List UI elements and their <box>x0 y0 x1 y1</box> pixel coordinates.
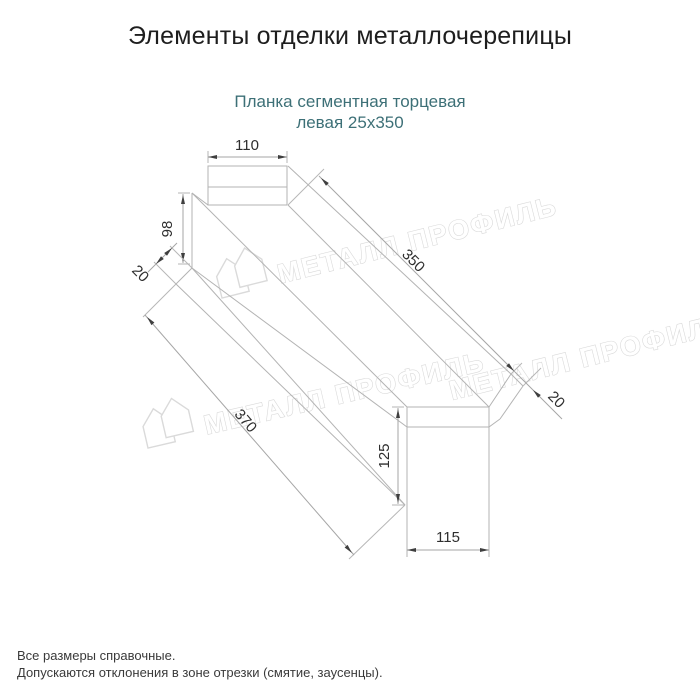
watermark-instance-right: МЕТАЛЛ ПРОФИЛЬ <box>446 307 700 406</box>
metal-profil-logo-icon <box>138 395 194 448</box>
left-end-face <box>208 166 287 205</box>
footer-note-1: Все размеры справочные. <box>17 647 383 665</box>
watermark-instance-center: МЕТАЛЛ ПРОФИЛЬ <box>212 172 561 304</box>
metal-profil-logo-icon <box>212 245 269 298</box>
left-flange-edge <box>176 268 192 284</box>
footer-notes: Все размеры справочные. Допускаются откл… <box>17 647 383 682</box>
dim-label-110: 110 <box>235 137 259 154</box>
dimension-top-width: 110 <box>208 137 287 163</box>
dim-arrow-icon <box>396 409 400 418</box>
right-flange-edge-4 <box>489 419 500 427</box>
dim-label-20-right: 20 <box>544 388 568 412</box>
dim-arrow-icon <box>407 548 416 552</box>
long-edge-middle <box>192 193 407 407</box>
dimension-bottom-width: 115 <box>407 529 489 552</box>
dim-label-115: 115 <box>436 529 460 546</box>
footer-note-2: Допускаются отклонения в зоне отрезки (с… <box>17 664 383 682</box>
dim-label-98: 98 <box>159 221 176 238</box>
drawing-page: Элементы отделки металлочерепицы Планка … <box>0 0 700 700</box>
dim-label-125: 125 <box>376 443 393 468</box>
dimension-left-height: 98 <box>159 193 190 264</box>
dim-arrow-icon <box>208 155 217 159</box>
watermark-instance-lower-left: МЕТАЛЛ ПРОФИЛЬ <box>138 328 487 454</box>
dim-label-20-left: 20 <box>128 262 152 286</box>
dim-arrow-icon <box>480 548 489 552</box>
dim-arrow-icon <box>278 155 287 159</box>
technical-drawing: МЕТАЛЛ ПРОФИЛЬ МЕТАЛЛ ПРОФИЛЬ МЕТАЛЛ ПРО… <box>0 0 700 700</box>
watermark-text: МЕТАЛЛ ПРОФИЛЬ <box>446 307 700 406</box>
dim-arrow-icon <box>181 195 185 204</box>
